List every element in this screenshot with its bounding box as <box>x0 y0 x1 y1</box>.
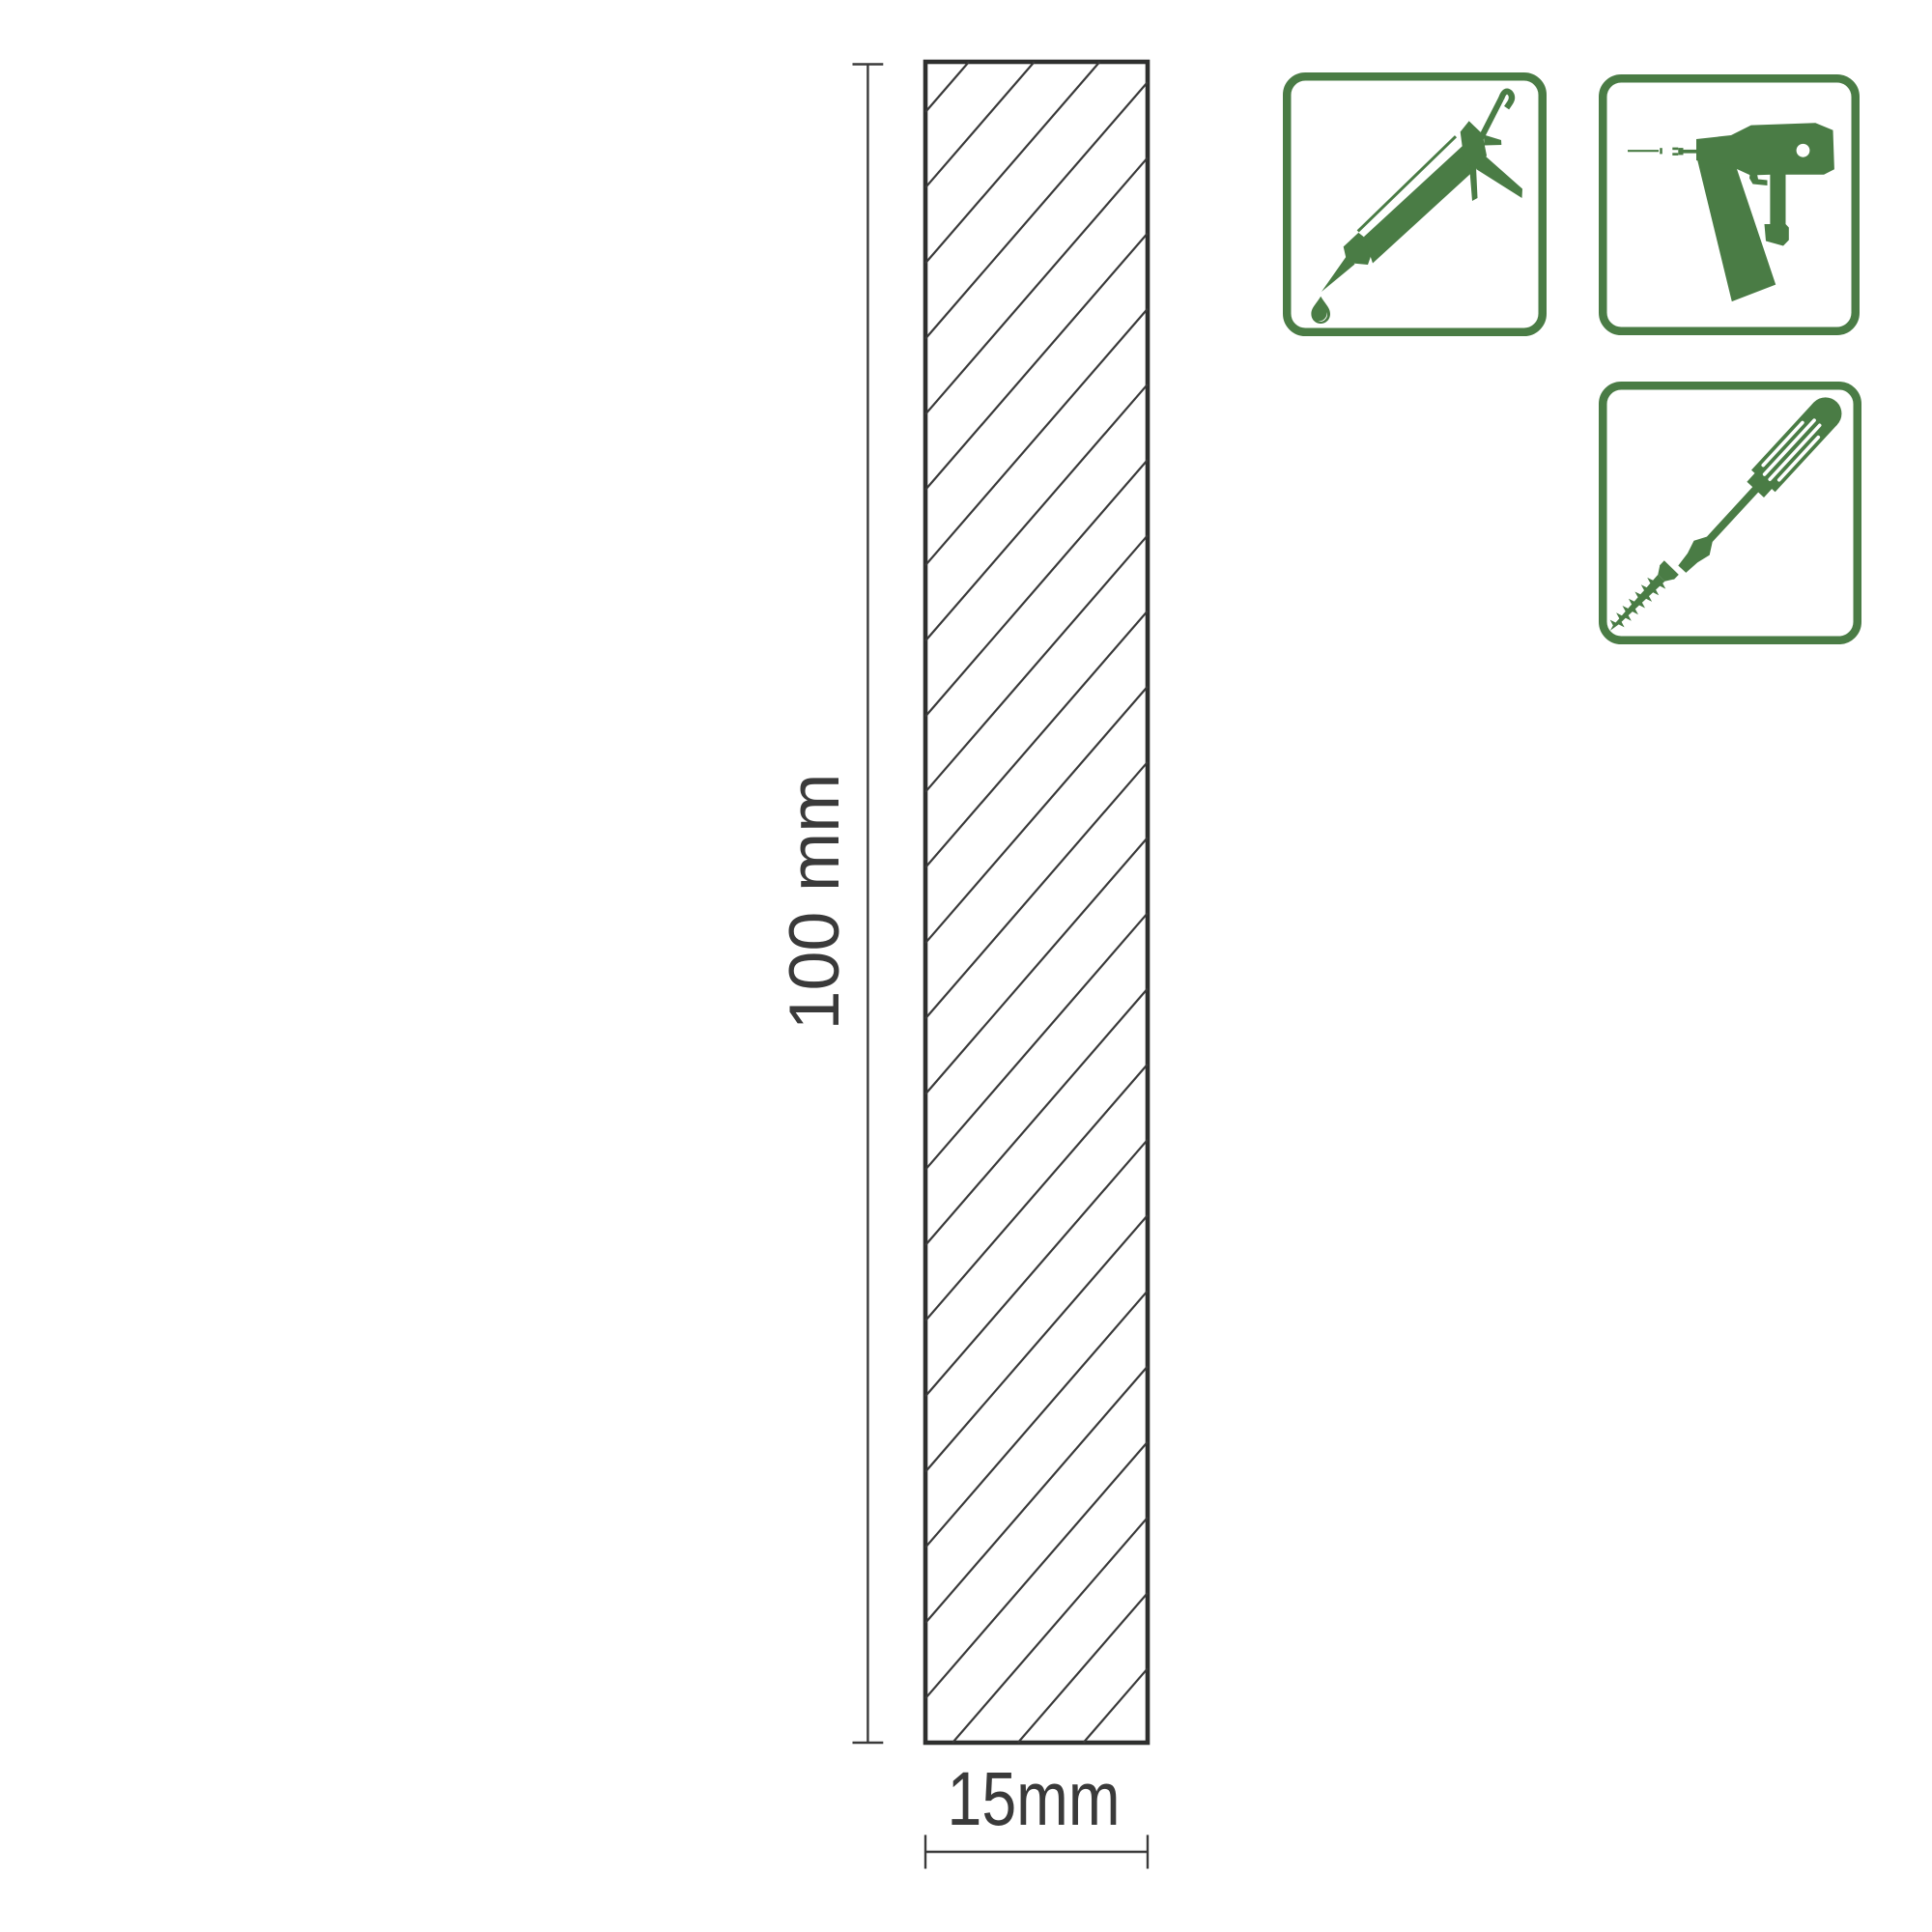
svg-text:15mm: 15mm <box>948 1755 1121 1841</box>
svg-text:100 mm: 100 mm <box>776 774 854 1031</box>
